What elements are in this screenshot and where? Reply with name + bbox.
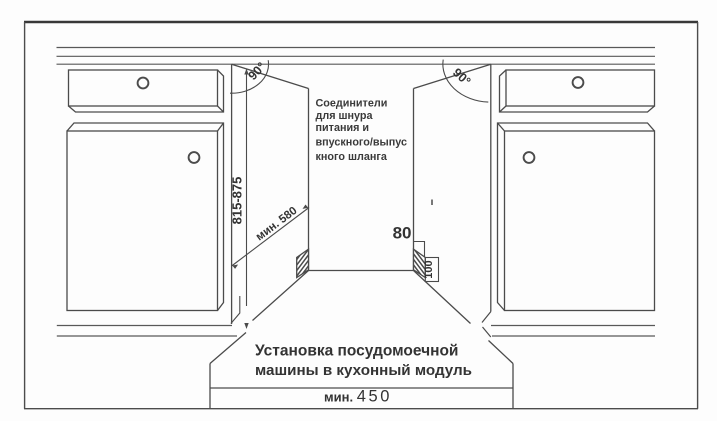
svg-text:100: 100 [423, 260, 435, 278]
svg-text:90°: 90° [450, 66, 473, 89]
svg-text:Соединители: Соединители [316, 98, 388, 110]
svg-text:мин. 580: мин. 580 [254, 205, 300, 244]
svg-text:впускного/выпус: впускного/выпус [316, 137, 408, 149]
svg-text:машины в кухонный модуль: машины в кухонный модуль [255, 362, 472, 379]
svg-text:80: 80 [393, 224, 412, 243]
svg-text:815-875: 815-875 [230, 177, 245, 225]
svg-text:для шнура: для шнура [316, 110, 374, 122]
svg-text:Установка посудомоечной: Установка посудомоечной [255, 343, 458, 360]
svg-text:мин. 450: мин. 450 [324, 388, 392, 406]
svg-text:90°: 90° [246, 60, 269, 83]
svg-text:кного шланга: кного шланга [316, 151, 388, 163]
svg-text:питания и: питания и [316, 122, 370, 134]
